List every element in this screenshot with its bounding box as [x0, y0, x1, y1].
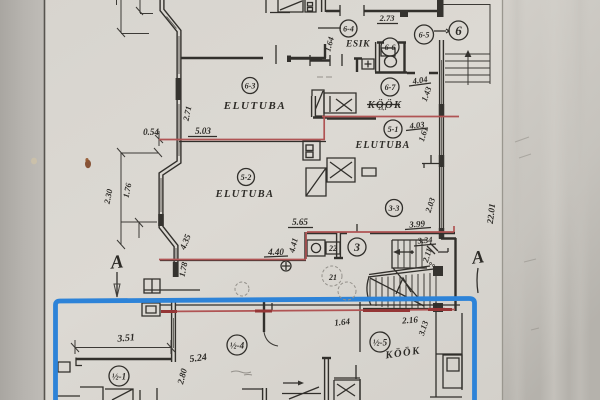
svg-text:4.40: 4.40	[267, 247, 284, 257]
svg-text:½-4: ½-4	[230, 341, 245, 351]
svg-text:A: A	[109, 251, 125, 273]
svg-text:5.65: 5.65	[292, 217, 308, 227]
svg-text:6-7: 6-7	[385, 83, 397, 92]
svg-text:2.73: 2.73	[379, 13, 396, 23]
svg-text:6-4: 6-4	[343, 25, 354, 34]
svg-text:6-5: 6-5	[419, 31, 430, 40]
svg-text:21: 21	[328, 273, 337, 282]
svg-text:ELUTUBA: ELUTUBA	[223, 100, 287, 112]
svg-text:0.54: 0.54	[143, 127, 159, 137]
svg-text:2.16: 2.16	[401, 314, 419, 325]
svg-text:3: 3	[353, 240, 360, 254]
svg-text:3-3: 3-3	[388, 204, 400, 213]
svg-text:5-1: 5-1	[388, 125, 399, 134]
svg-text:6-6: 6-6	[385, 43, 396, 52]
svg-text:A: A	[470, 246, 486, 268]
svg-text:½-1: ½-1	[112, 372, 126, 382]
svg-text:½-5: ½-5	[373, 338, 388, 348]
svg-text:ELUTUBA: ELUTUBA	[215, 189, 275, 200]
svg-text:22: 22	[328, 244, 337, 253]
svg-text:6: 6	[455, 23, 462, 38]
svg-text:3.51: 3.51	[116, 332, 135, 345]
svg-text:1.64: 1.64	[334, 316, 351, 328]
svg-text:6-3: 6-3	[245, 82, 256, 91]
svg-text:13,1: 13,1	[378, 107, 387, 112]
svg-text:ESIK: ESIK	[345, 40, 370, 50]
svg-text:ELUTUBA: ELUTUBA	[354, 140, 410, 151]
svg-text:5-2: 5-2	[241, 173, 252, 182]
svg-text:5.03: 5.03	[195, 126, 211, 136]
